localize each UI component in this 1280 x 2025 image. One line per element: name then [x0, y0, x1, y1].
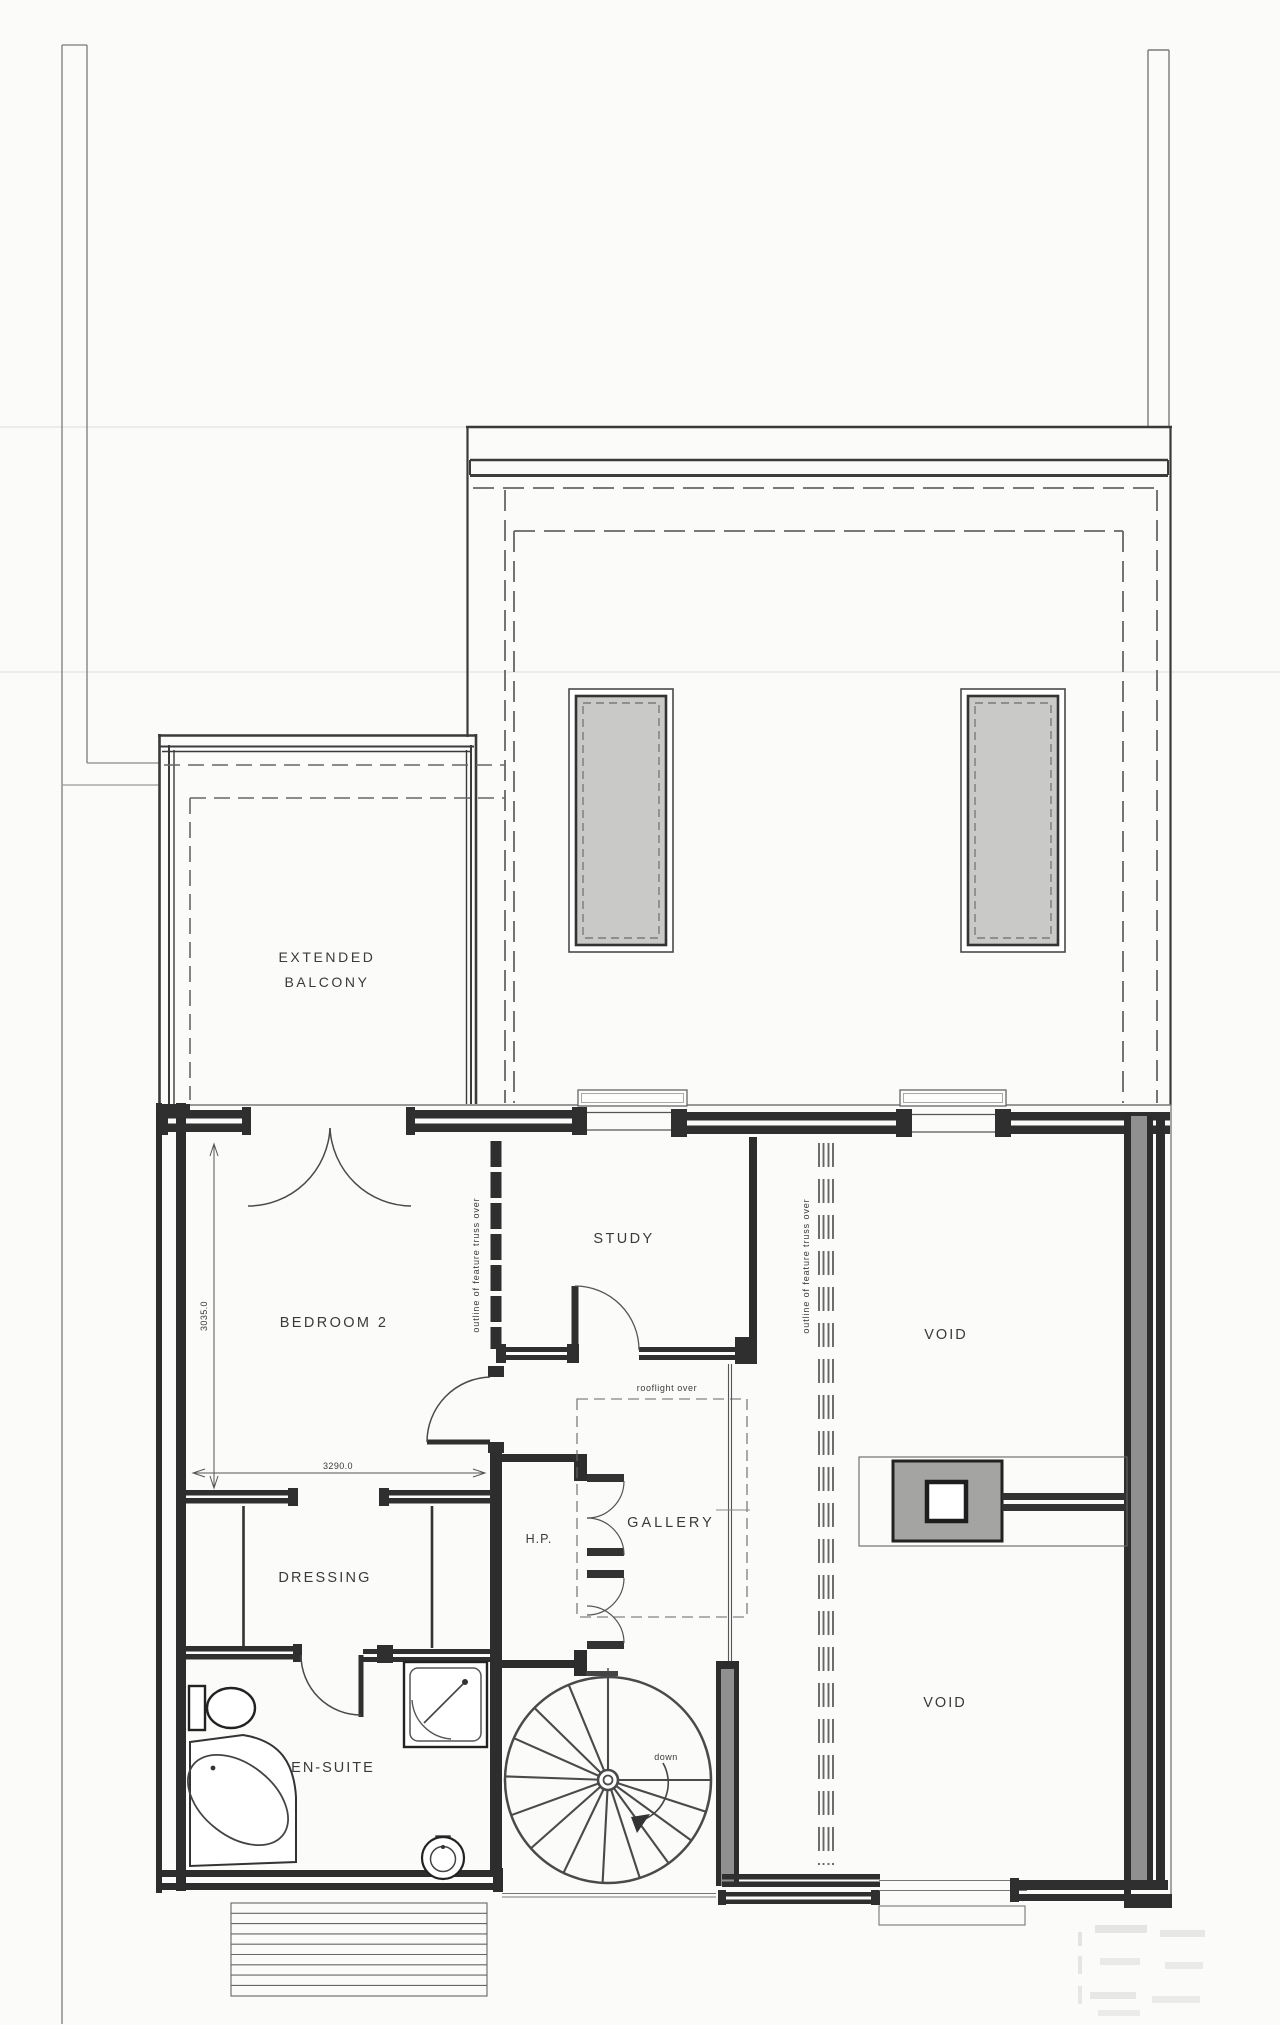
- svg-text:STUDY: STUDY: [593, 1231, 654, 1247]
- svg-text:3035.0: 3035.0: [199, 1301, 209, 1331]
- svg-text:H.P.: H.P.: [526, 1532, 553, 1546]
- svg-text:GALLERY: GALLERY: [627, 1515, 715, 1531]
- svg-text:DRESSING: DRESSING: [278, 1570, 371, 1586]
- svg-text:EN-SUITE: EN-SUITE: [291, 1760, 375, 1776]
- svg-text:VOID: VOID: [923, 1695, 966, 1711]
- svg-text:outline of feature truss over: outline of feature truss over: [801, 1198, 811, 1333]
- svg-text:BEDROOM 2: BEDROOM 2: [280, 1315, 389, 1331]
- svg-text:3290.0: 3290.0: [323, 1461, 353, 1471]
- svg-text:BALCONY: BALCONY: [284, 974, 369, 990]
- svg-text:down: down: [654, 1752, 678, 1762]
- svg-text:EXTENDED: EXTENDED: [278, 949, 375, 965]
- svg-text:rooflight over: rooflight over: [637, 1383, 697, 1393]
- svg-text:outline of feature truss over: outline of feature truss over: [471, 1197, 481, 1332]
- svg-text:VOID: VOID: [924, 1327, 967, 1343]
